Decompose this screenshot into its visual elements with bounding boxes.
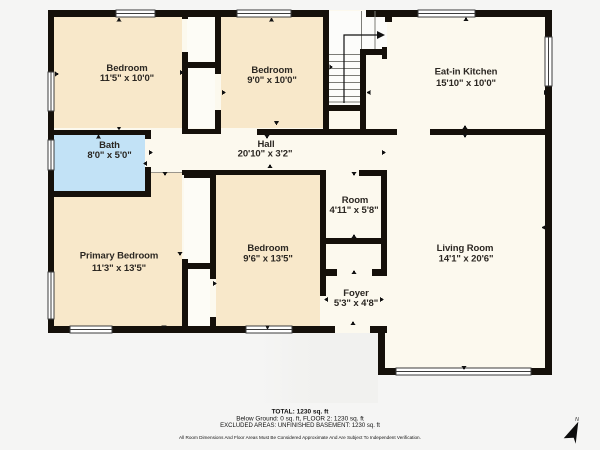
svg-text:TOTAL: 1230 sq. ft: TOTAL: 1230 sq. ft — [272, 409, 330, 416]
svg-text:15'10" x 10'0": 15'10" x 10'0" — [436, 78, 496, 89]
svg-text:5'3" x 4'8": 5'3" x 4'8" — [334, 298, 378, 309]
svg-text:4'11" x 5'8": 4'11" x 5'8" — [329, 205, 378, 216]
svg-text:11'5" x 10'0": 11'5" x 10'0" — [100, 73, 154, 84]
svg-text:EXCLUDED AREAS: UNFINISHED BAS: EXCLUDED AREAS: UNFINISHED BASEMENT: 123… — [220, 423, 380, 429]
svg-text:9'0" x 10'0": 9'0" x 10'0" — [247, 75, 297, 86]
svg-text:Eat-in Kitchen: Eat-in Kitchen — [435, 67, 498, 78]
svg-text:Below Ground: 0 sq. ft, FLOOR: Below Ground: 0 sq. ft, FLOOR 2: 1230 sq… — [236, 416, 364, 423]
svg-text:8'0" x 5'0": 8'0" x 5'0" — [87, 150, 131, 161]
svg-text:Primary Bedroom: Primary Bedroom — [80, 251, 159, 262]
svg-text:Bedroom: Bedroom — [247, 243, 288, 254]
svg-text:11'3" x 13'5": 11'3" x 13'5" — [92, 263, 146, 274]
svg-text:N: N — [575, 417, 579, 423]
svg-text:14'1" x 20'6": 14'1" x 20'6" — [439, 254, 494, 265]
svg-text:Living Room: Living Room — [437, 243, 494, 254]
svg-text:All Room Dimensions And Floor: All Room Dimensions And Floor Areas Must… — [179, 435, 421, 440]
svg-text:9'6" x 13'5": 9'6" x 13'5" — [243, 254, 293, 265]
svg-text:20'10" x 3'2": 20'10" x 3'2" — [238, 149, 293, 160]
